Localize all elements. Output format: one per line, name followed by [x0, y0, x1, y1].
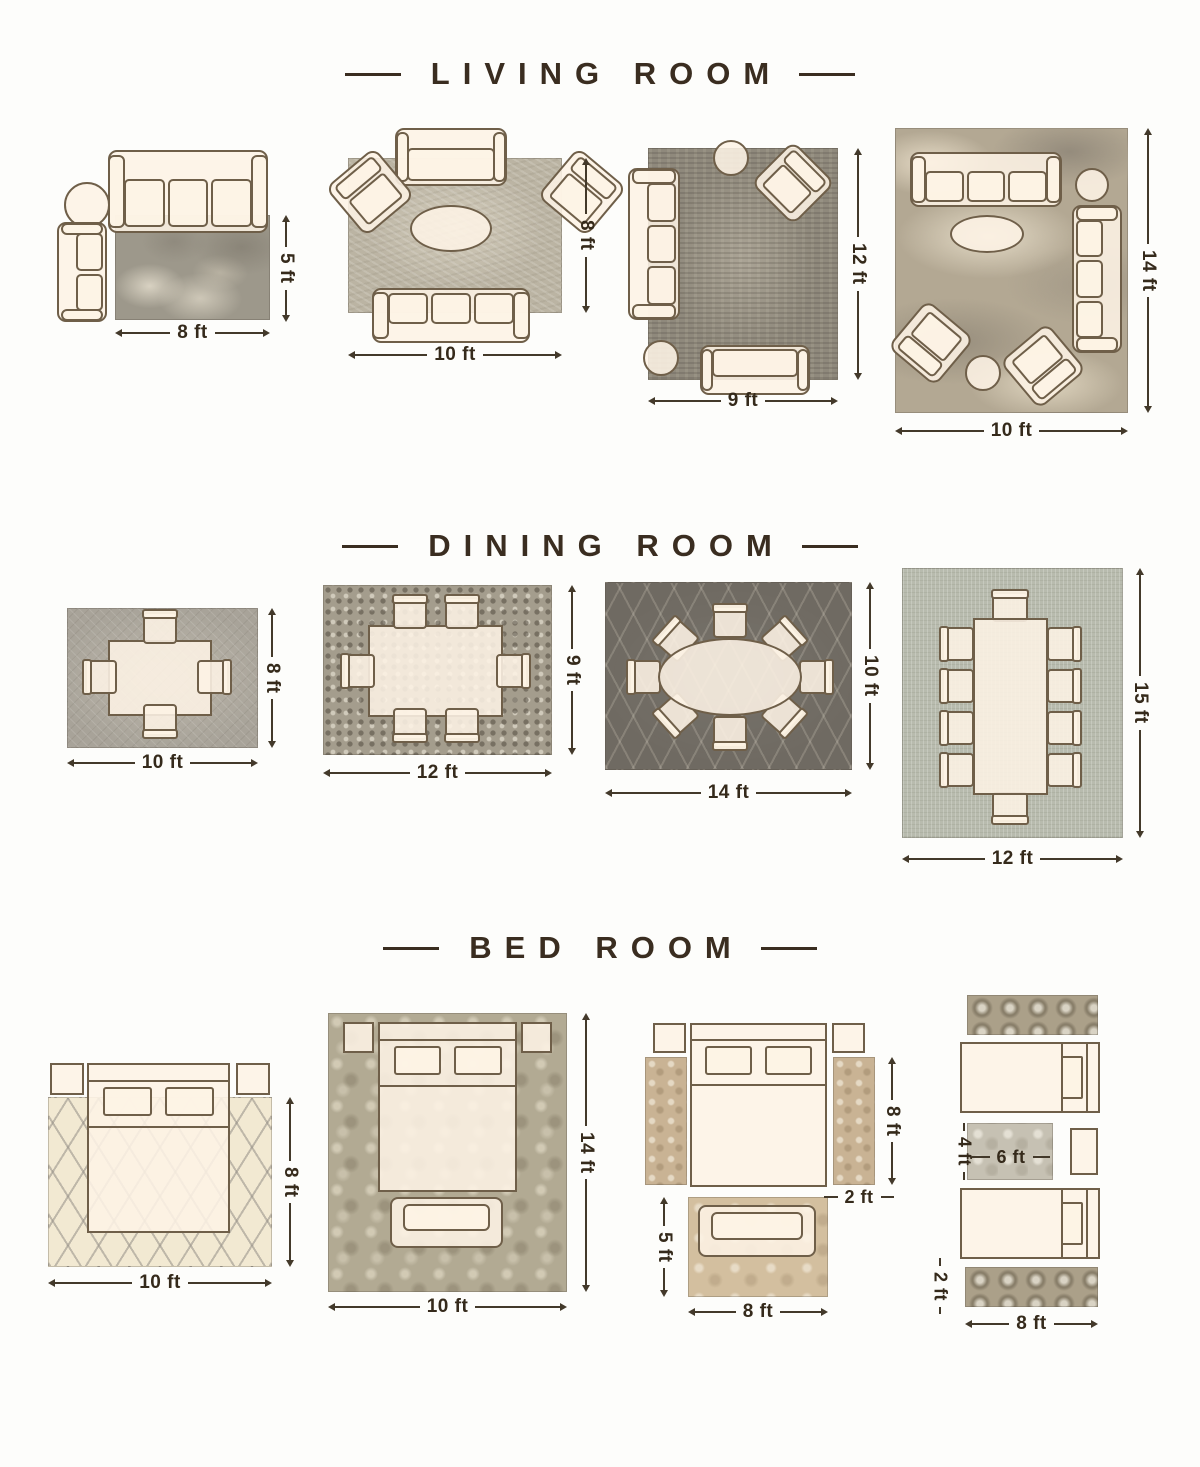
width-dimension: 10 ft	[328, 1296, 567, 1318]
sofa	[108, 150, 268, 233]
height-dimension: 10 ft	[858, 582, 882, 770]
seat-cushion	[168, 179, 209, 227]
dining-chair	[629, 660, 661, 694]
dimension-label: 12 ft	[410, 762, 466, 784]
dimension-label: 2 ft	[930, 1266, 951, 1307]
dining-chair	[799, 660, 831, 694]
dining-chair	[713, 606, 747, 638]
runner-rug-bottom	[965, 1267, 1098, 1307]
twin-bed	[960, 1188, 1100, 1259]
dining-chair	[445, 597, 479, 629]
seat-cushion	[647, 266, 675, 304]
arrow-right-icon	[555, 351, 562, 359]
runner-width-dimension: 2 ft	[824, 1186, 894, 1208]
height-dimension: 12 ft	[846, 148, 870, 380]
dining-chair	[143, 704, 177, 736]
dimension-label: 8 ft	[279, 1161, 301, 1204]
arrow-right-icon	[831, 397, 838, 405]
arrow-down-icon	[582, 306, 590, 313]
seat-cushion	[712, 349, 799, 377]
width-dimension: 10 ft	[48, 1272, 272, 1294]
sofa-seats	[388, 293, 514, 324]
bed	[378, 1022, 517, 1192]
seat-cushion	[647, 183, 675, 221]
nightstand	[343, 1022, 374, 1053]
pillow	[103, 1087, 152, 1117]
arrow-left-icon	[648, 397, 655, 405]
dimension-label: 8 ft	[881, 1100, 903, 1143]
arrow-left-icon	[895, 427, 902, 435]
pillow	[765, 1046, 812, 1075]
rug-size-guide: LIVING ROOM 5 ft 8 ft	[0, 0, 1200, 1467]
dimension-label: 14 ft	[701, 782, 757, 804]
arrow-down-icon	[854, 373, 862, 380]
loveseat	[700, 345, 810, 395]
sofa	[1072, 205, 1122, 353]
arrow-down-icon	[582, 1285, 590, 1292]
arrow-up-icon	[268, 608, 276, 615]
side-table	[713, 140, 749, 176]
title-text: LIVING ROOM	[431, 56, 782, 92]
runner-rug-right	[833, 1057, 875, 1185]
arrow-right-icon	[1116, 855, 1123, 863]
arrow-up-icon	[1136, 568, 1144, 575]
headboard	[89, 1065, 228, 1082]
sofa-seats	[1076, 220, 1103, 338]
dining-chair	[393, 708, 427, 740]
nightstand	[236, 1063, 270, 1095]
nightstand	[1070, 1128, 1098, 1175]
dimension-label: 12 ft	[847, 237, 869, 291]
title-dash-right	[802, 545, 858, 548]
seat-cushion	[407, 148, 496, 181]
arrow-up-icon	[282, 215, 290, 222]
dimension-label: 9 ft	[561, 649, 583, 692]
arrow-up-icon	[866, 582, 874, 589]
dimension-label: 10 ft	[984, 420, 1040, 442]
arrow-up-icon	[582, 1013, 590, 1020]
nightstand	[653, 1023, 686, 1053]
sofa-seats	[76, 233, 103, 312]
dining-chair	[713, 716, 747, 748]
arrow-right-icon	[265, 1279, 272, 1287]
seat-cushion	[925, 171, 963, 202]
seat-cushion	[474, 293, 514, 324]
seat-cushion	[967, 171, 1005, 202]
seat-cushion	[1008, 171, 1046, 202]
arrow-right-icon	[1121, 427, 1128, 435]
pillow	[1061, 1202, 1083, 1245]
dimension-label: 9 ft	[721, 390, 766, 412]
arrow-right-icon	[821, 1308, 828, 1316]
runner-rug-top	[967, 995, 1098, 1035]
dimension-label: 14 ft	[1137, 244, 1159, 298]
dining-chair	[393, 597, 427, 629]
arrow-left-icon	[48, 1279, 55, 1287]
dimension-label: 14 ft	[575, 1126, 597, 1180]
width-dimension: 10 ft	[895, 420, 1128, 442]
runner-height-dimension: 2 ft	[928, 1258, 952, 1314]
height-dimension: 14 ft	[1136, 128, 1160, 413]
arrow-left-icon	[902, 855, 909, 863]
dining-chair	[496, 654, 528, 688]
arrow-up-icon	[660, 1197, 668, 1204]
arrow-left-icon	[965, 1320, 972, 1328]
title-dash-left	[345, 73, 401, 76]
arrow-left-icon	[605, 789, 612, 797]
dimension-label: 8 ft	[170, 322, 215, 344]
title-dash-right	[761, 947, 817, 950]
headboard	[692, 1025, 825, 1041]
foot-rug-width-dimension: 8 ft	[688, 1301, 828, 1323]
title-text: DINING ROOM	[428, 528, 785, 564]
dining-chair	[1047, 711, 1079, 745]
seat-cushion	[124, 179, 165, 227]
pillow	[454, 1046, 502, 1076]
arrow-left-icon	[323, 769, 330, 777]
nightstand	[50, 1063, 84, 1095]
title-dash-left	[383, 947, 439, 950]
height-dimension: 9 ft	[560, 585, 584, 755]
arrow-down-icon	[888, 1178, 896, 1185]
dimension-label: 12 ft	[985, 848, 1041, 870]
arrow-left-icon	[67, 759, 74, 767]
seat-cushion	[76, 274, 103, 312]
height-dimension: 5 ft	[274, 215, 298, 322]
height-dimension: 8 ft	[278, 1097, 302, 1267]
dining-table	[368, 625, 503, 717]
arrow-down-icon	[268, 741, 276, 748]
sofa-seats	[712, 349, 799, 377]
dimension-label: 6 ft	[990, 1147, 1033, 1168]
living-room-title: LIVING ROOM	[0, 56, 1200, 92]
arrow-left-icon	[328, 1303, 335, 1311]
width-dimension: 10 ft	[67, 752, 258, 774]
headboard	[380, 1024, 515, 1041]
sofa-seats	[925, 171, 1046, 202]
dining-table	[973, 618, 1048, 795]
dining-chair	[1047, 669, 1079, 703]
arrow-right-icon	[263, 329, 270, 337]
arrow-right-icon	[545, 769, 552, 777]
pillow	[705, 1046, 752, 1075]
dining-chair	[197, 660, 229, 694]
sofa-seats	[407, 148, 496, 181]
arrow-down-icon	[286, 1260, 294, 1267]
bed-fold-line	[692, 1084, 825, 1086]
arrow-down-icon	[568, 748, 576, 755]
seat-cushion	[388, 293, 428, 324]
bed	[87, 1063, 230, 1233]
sofa	[910, 152, 1062, 207]
height-dimension: 8 ft	[574, 158, 598, 313]
height-dimension: 14 ft	[574, 1013, 598, 1292]
dimension-label: 5 ft	[275, 247, 297, 290]
seat-cushion	[431, 293, 471, 324]
arrow-right-icon	[560, 1303, 567, 1311]
dining-chair	[143, 612, 177, 644]
dimension-label: 10 ft	[132, 1272, 188, 1294]
runner-rug-left	[645, 1057, 687, 1185]
dining-chair	[85, 660, 117, 694]
dining-chair	[1047, 627, 1079, 661]
dining-chair	[942, 753, 974, 787]
coffee-table	[950, 215, 1024, 253]
dining-chair	[942, 711, 974, 745]
sofa	[372, 288, 530, 343]
width-dimension: 10 ft	[348, 344, 562, 366]
dining-chair	[445, 708, 479, 740]
foot-rug-height-dimension: 5 ft	[652, 1197, 676, 1297]
dimension-label: 8 ft	[575, 214, 597, 257]
arrow-down-icon	[660, 1290, 668, 1297]
arrow-right-icon	[251, 759, 258, 767]
arrow-up-icon	[286, 1097, 294, 1104]
seat-cushion	[1076, 220, 1103, 257]
bench	[390, 1197, 503, 1248]
arrow-down-icon	[1136, 831, 1144, 838]
bed-fold-line	[89, 1126, 228, 1128]
seat-cushion	[647, 225, 675, 263]
side-table	[965, 355, 1001, 391]
pillows	[103, 1087, 214, 1117]
title-dash-right	[799, 73, 855, 76]
title-text: BED ROOM	[469, 930, 744, 966]
loveseat	[395, 128, 507, 186]
dining-chair	[942, 669, 974, 703]
dimension-label: 10 ft	[135, 752, 191, 774]
pillow	[1061, 1056, 1083, 1099]
seat-cushion	[1076, 260, 1103, 297]
height-dimension: 15 ft	[1128, 568, 1152, 838]
accent-rug-width-dimension: 6 ft	[972, 1146, 1050, 1168]
arrow-left-icon	[115, 329, 122, 337]
pillow	[165, 1087, 214, 1117]
seat-cushion	[211, 179, 252, 227]
arrow-up-icon	[888, 1057, 896, 1064]
dining-chair	[992, 792, 1028, 822]
arrow-up-icon	[854, 148, 862, 155]
dimension-label: 10 ft	[427, 344, 483, 366]
arrow-right-icon	[1091, 1320, 1098, 1328]
coffee-table	[410, 205, 492, 252]
pillows	[705, 1046, 811, 1075]
dining-table-oval	[658, 638, 802, 716]
arrow-left-icon	[688, 1308, 695, 1316]
arrow-down-icon	[866, 763, 874, 770]
dining-chair	[942, 627, 974, 661]
width-dimension: 12 ft	[323, 762, 552, 784]
dimension-label: 5 ft	[653, 1226, 675, 1269]
pillow	[394, 1046, 442, 1076]
dimension-label: 10 ft	[420, 1296, 476, 1318]
seat-cushion	[76, 233, 103, 271]
side-table	[643, 340, 679, 376]
dimension-label: 8 ft	[736, 1301, 781, 1323]
sofa-seats	[647, 183, 675, 304]
dining-chair	[343, 654, 375, 688]
arrow-up-icon	[568, 585, 576, 592]
arrow-up-icon	[582, 158, 590, 165]
nightstand	[832, 1023, 865, 1053]
arrow-down-icon	[1144, 406, 1152, 413]
dimension-label: 10 ft	[859, 649, 881, 703]
seat-cushion	[1076, 301, 1103, 338]
sofa-seats	[124, 179, 252, 227]
dining-room-title: DINING ROOM	[0, 528, 1200, 564]
runner-width-dimension: 8 ft	[965, 1313, 1098, 1335]
height-dimension: 8 ft	[260, 608, 284, 748]
width-dimension: 12 ft	[902, 848, 1123, 870]
side-table	[1075, 168, 1109, 202]
arrow-right-icon	[845, 789, 852, 797]
arrow-down-icon	[282, 315, 290, 322]
width-dimension: 14 ft	[605, 782, 852, 804]
twin-bed	[960, 1042, 1100, 1113]
bed	[690, 1023, 827, 1187]
dimension-label: 8 ft	[1009, 1313, 1054, 1335]
title-dash-left	[342, 545, 398, 548]
width-dimension: 9 ft	[648, 390, 838, 412]
nightstand	[521, 1022, 552, 1053]
dimension-label: 15 ft	[1129, 676, 1151, 730]
arrow-up-icon	[1144, 128, 1152, 135]
bed-room-title: BED ROOM	[0, 930, 1200, 966]
arrow-left-icon	[348, 351, 355, 359]
loveseat	[698, 1205, 816, 1257]
dimension-label: 2 ft	[838, 1187, 881, 1208]
loveseat	[57, 222, 107, 322]
width-dimension: 8 ft	[115, 322, 270, 344]
bed-fold-line	[380, 1085, 515, 1087]
runner-length-dimension: 8 ft	[880, 1057, 904, 1185]
sofa	[628, 168, 680, 320]
dining-chair	[1047, 753, 1079, 787]
pillows	[394, 1046, 502, 1076]
dimension-label: 8 ft	[261, 657, 283, 700]
